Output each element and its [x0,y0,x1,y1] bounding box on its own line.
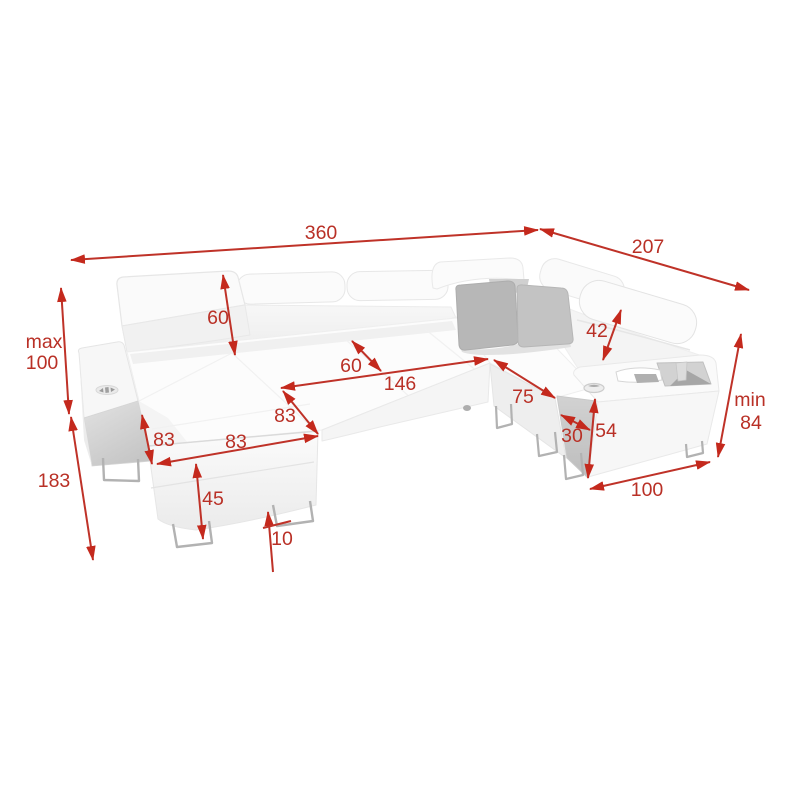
svg-text:max: max [26,331,63,353]
svg-text:60: 60 [207,307,229,329]
svg-text:100: 100 [26,352,59,374]
svg-text:75: 75 [512,386,534,408]
svg-text:83: 83 [274,405,296,427]
svg-text:10: 10 [271,528,293,550]
svg-text:30: 30 [561,425,583,447]
svg-text:83: 83 [225,431,247,453]
svg-text:146: 146 [384,373,417,395]
svg-text:84: 84 [740,412,762,434]
svg-text:183: 183 [38,470,71,492]
svg-text:min: min [734,389,765,411]
svg-text:54: 54 [595,420,617,442]
svg-text:360: 360 [305,222,338,244]
svg-text:207: 207 [632,236,665,258]
svg-text:100: 100 [631,479,664,501]
svg-text:83: 83 [153,429,175,451]
svg-text:42: 42 [586,320,608,342]
svg-text:60: 60 [340,355,362,377]
svg-text:45: 45 [202,488,224,510]
